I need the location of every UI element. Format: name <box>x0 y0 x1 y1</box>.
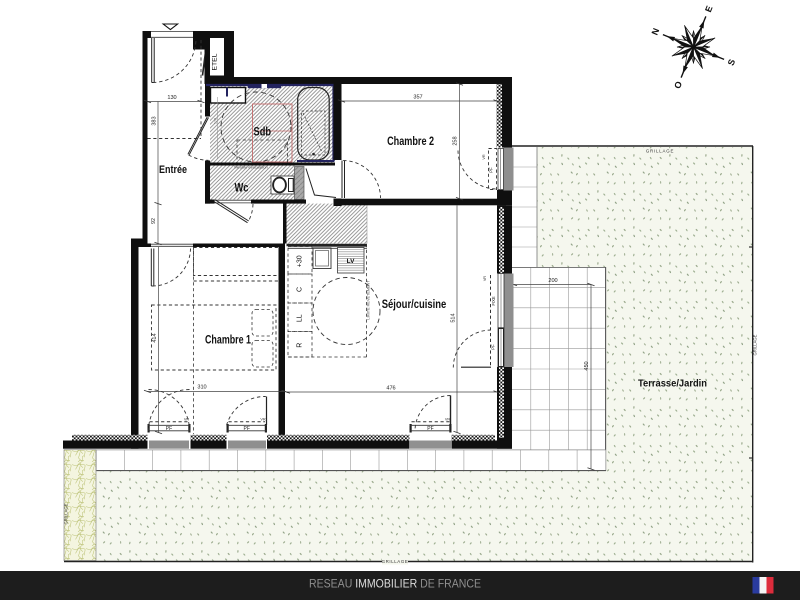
svg-text:VR: VR <box>445 417 451 421</box>
svg-text:130: 130 <box>167 95 176 101</box>
svg-text:GRILLAGE: GRILLAGE <box>382 559 409 564</box>
svg-text:PF: PF <box>244 426 250 432</box>
svg-text:FIXE: FIXE <box>491 296 496 306</box>
svg-text:GRILLAGE: GRILLAGE <box>64 503 69 524</box>
svg-text:GRILLAGE: GRILLAGE <box>753 334 758 355</box>
svg-text:LV: LV <box>347 258 355 265</box>
svg-text:414: 414 <box>152 333 158 342</box>
svg-text:PF: PF <box>166 426 172 432</box>
svg-text:Chambre 1: Chambre 1 <box>205 334 251 346</box>
svg-text:PF: PF <box>491 344 496 350</box>
svg-text:PF: PF <box>489 167 494 173</box>
svg-text:92: 92 <box>151 218 157 224</box>
svg-text:VR: VR <box>482 154 486 160</box>
svg-text:ETEL: ETEL <box>212 53 219 70</box>
svg-text:170: 170 <box>214 118 218 124</box>
svg-text:Séjour/cuisine: Séjour/cuisine <box>382 299 447 311</box>
svg-text:VR: VR <box>483 276 487 282</box>
svg-text:VR: VR <box>260 417 266 421</box>
svg-text:PF: PF <box>427 426 433 432</box>
svg-text:Terrasse/Jardin: Terrasse/Jardin <box>638 378 707 390</box>
svg-text:VR: VR <box>184 417 190 421</box>
svg-text:383: 383 <box>151 116 157 125</box>
svg-text:Wc: Wc <box>235 183 249 195</box>
svg-text:476: 476 <box>386 386 395 392</box>
svg-text:LL: LL <box>297 314 304 322</box>
svg-text:200: 200 <box>548 278 557 284</box>
svg-text:450: 450 <box>584 361 590 370</box>
svg-text:Sdb: Sdb <box>254 127 272 139</box>
svg-text:GRILLAGE: GRILLAGE <box>646 148 674 153</box>
svg-text:+30: +30 <box>297 255 304 267</box>
svg-text:357: 357 <box>413 95 422 101</box>
svg-text:C: C <box>297 287 304 292</box>
svg-text:310: 310 <box>197 385 206 391</box>
svg-text:258: 258 <box>453 136 459 145</box>
svg-text:RESEAU IMMOBILIER DE FRANCE: RESEAU IMMOBILIER DE FRANCE <box>309 577 481 591</box>
svg-text:R: R <box>297 343 304 348</box>
svg-text:Entrée: Entrée <box>159 164 187 176</box>
svg-text:514: 514 <box>450 313 456 322</box>
svg-text:Chambre 2: Chambre 2 <box>387 136 434 148</box>
